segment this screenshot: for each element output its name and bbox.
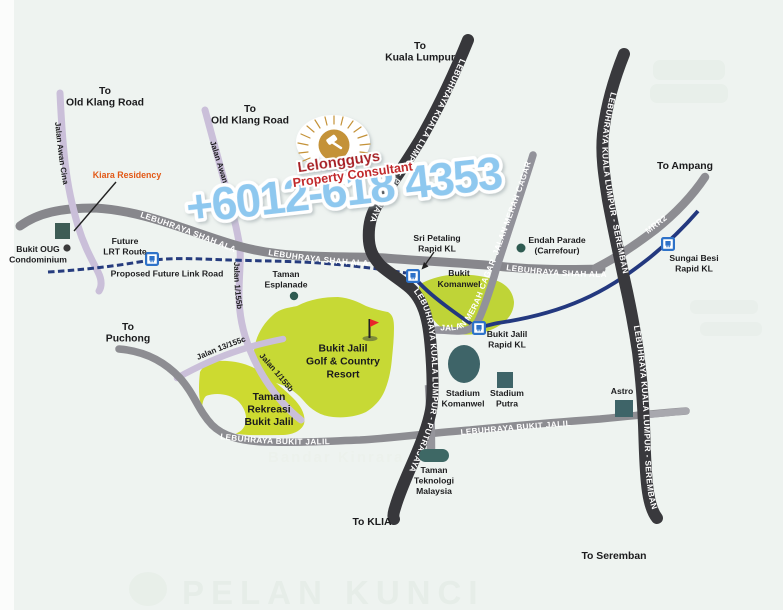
- svg-text:(Carrefour): (Carrefour): [535, 246, 580, 256]
- svg-text:Komanwel: Komanwel: [442, 399, 485, 409]
- svg-text:To KLIA: To KLIA: [352, 517, 392, 528]
- svg-text:Puchong: Puchong: [106, 334, 150, 345]
- svg-text:Stadium: Stadium: [490, 388, 524, 398]
- svg-text:Sungai Besi: Sungai Besi: [669, 253, 718, 263]
- svg-text:To: To: [99, 86, 111, 97]
- svg-text:Condominium: Condominium: [9, 255, 67, 265]
- svg-text:Astro: Astro: [611, 386, 633, 396]
- svg-text:Sri Petaling: Sri Petaling: [413, 233, 460, 243]
- svg-text:To Seremban: To Seremban: [581, 551, 646, 562]
- svg-text:Rapid KL: Rapid KL: [418, 244, 456, 254]
- svg-text:Bukit Jalil: Bukit Jalil: [318, 344, 367, 355]
- svg-text:Stadium: Stadium: [446, 388, 480, 398]
- svg-text:To: To: [244, 104, 256, 115]
- svg-text:Teknologi: Teknologi: [414, 476, 454, 486]
- svg-text:Rapid KL: Rapid KL: [488, 340, 526, 350]
- svg-text:Taman: Taman: [420, 465, 447, 475]
- svg-text:Bukit: Bukit: [448, 268, 470, 278]
- svg-text:Rekreasi: Rekreasi: [247, 405, 290, 416]
- svg-text:Old Klang Road: Old Klang Road: [211, 116, 289, 127]
- svg-text:Kuala Lumpur: Kuala Lumpur: [385, 53, 455, 64]
- svg-text:Golf & Country: Golf & Country: [306, 357, 380, 368]
- svg-text:LRT Route: LRT Route: [103, 247, 147, 257]
- svg-text:Rapid KL: Rapid KL: [675, 264, 713, 274]
- svg-text:Malaysia: Malaysia: [416, 486, 452, 496]
- svg-text:Bukit Jalil: Bukit Jalil: [244, 417, 293, 428]
- svg-text:Endah Parade: Endah Parade: [528, 235, 586, 245]
- svg-text:Komanwel: Komanwel: [438, 279, 481, 289]
- svg-text:Esplanade: Esplanade: [265, 280, 308, 290]
- svg-text:Kiara Residency: Kiara Residency: [93, 170, 162, 180]
- svg-text:Resort: Resort: [327, 370, 360, 381]
- svg-text:Bandar Kinrara: Bandar Kinrara: [268, 449, 404, 466]
- svg-text:Bukit OUG: Bukit OUG: [16, 244, 60, 254]
- svg-text:Future: Future: [112, 236, 139, 246]
- svg-text:Putra: Putra: [496, 399, 518, 409]
- svg-text:Taman: Taman: [253, 392, 286, 403]
- svg-text:Bukit Jalil: Bukit Jalil: [487, 329, 528, 339]
- svg-text:PELAN KUNCI: PELAN KUNCI: [182, 574, 485, 610]
- svg-text:Taman: Taman: [272, 269, 299, 279]
- svg-text:Proposed Future Link Road: Proposed Future Link Road: [111, 269, 224, 279]
- svg-text:To: To: [122, 322, 134, 333]
- svg-text:To: To: [414, 41, 426, 52]
- svg-text:Old Klang Road: Old Klang Road: [66, 98, 144, 109]
- svg-text:To Ampang: To Ampang: [657, 161, 713, 172]
